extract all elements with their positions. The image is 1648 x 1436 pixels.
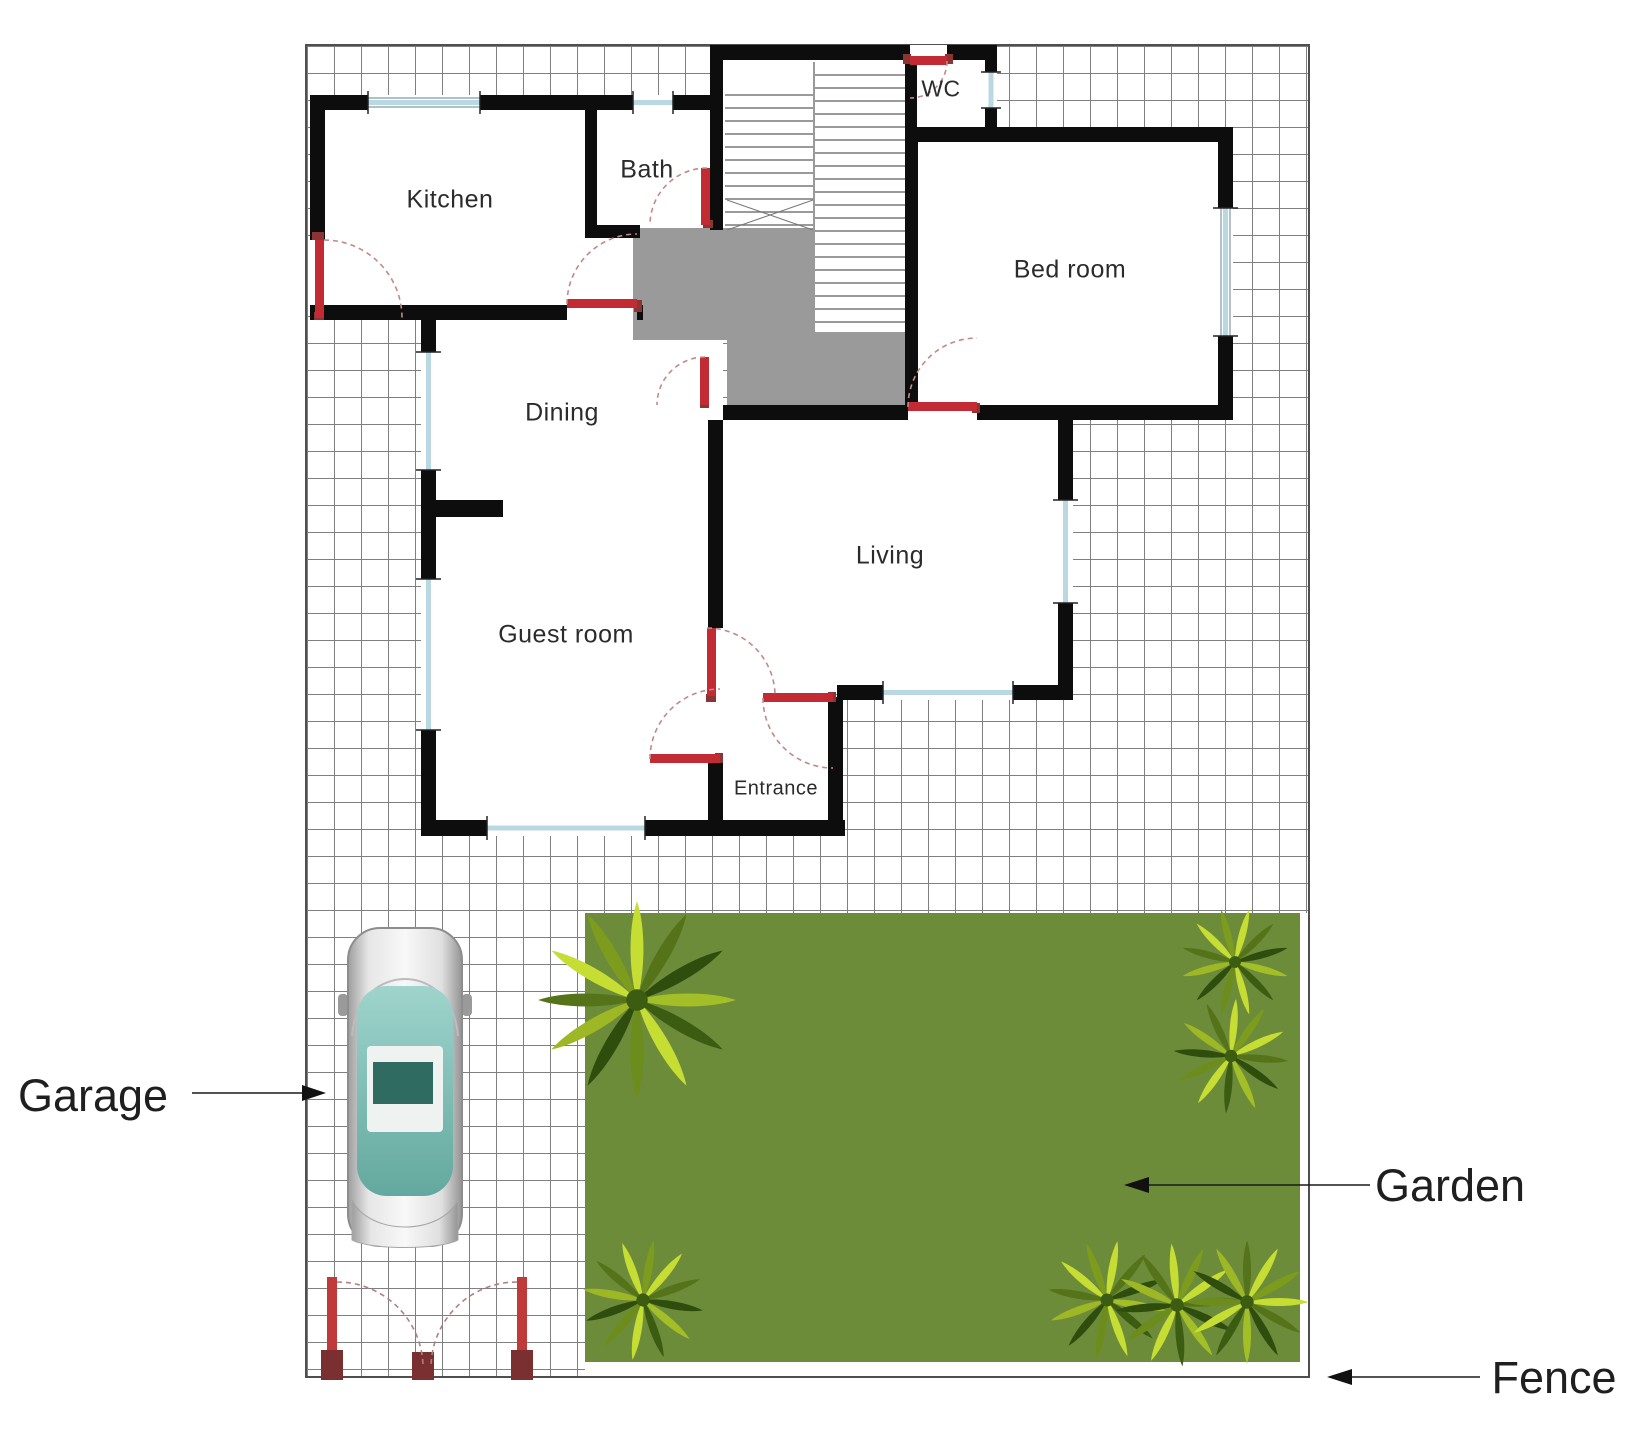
garden-annotation: Garden — [1375, 1160, 1525, 1212]
gate — [321, 1277, 533, 1380]
kitchen-dining-door — [567, 299, 637, 308]
palm-plant-icon — [557, 1214, 728, 1385]
bath-door — [701, 168, 710, 225]
dining-hall-door — [700, 357, 709, 405]
garage-annotation: Garage — [18, 1070, 168, 1122]
bedroom-door — [908, 402, 977, 411]
kitchen-exterior-door — [315, 240, 324, 318]
garden-arrowhead-icon — [1124, 1177, 1149, 1193]
bedroom-label: Bed room — [1014, 256, 1126, 285]
front-entrance-door — [763, 693, 833, 702]
garage-arrowhead-icon — [302, 1085, 326, 1101]
dining-label: Dining — [525, 399, 599, 428]
car-top-view — [338, 928, 472, 1248]
wc-label: WC — [921, 76, 960, 103]
living-label: Living — [856, 542, 924, 571]
guest-door — [650, 754, 720, 763]
garden-palms — [538, 896, 1309, 1391]
fence-arrowhead-icon — [1327, 1369, 1352, 1385]
guest-room-label: Guest room — [498, 621, 634, 650]
wc-door — [910, 56, 947, 65]
entrance-label: Entrance — [734, 778, 818, 801]
kitchen-label: Kitchen — [407, 186, 494, 215]
palm-plant-icon — [1155, 980, 1308, 1133]
floor-plan-canvas: Kitchen Bath WC Bed room Dining Living G… — [0, 0, 1648, 1436]
palm-plant-icon — [538, 901, 736, 1099]
room-floors — [308, 45, 1218, 820]
bath-label: Bath — [620, 156, 673, 185]
fence-annotation: Fence — [1491, 1352, 1616, 1404]
plan-drawing — [0, 0, 1648, 1436]
living-door — [707, 628, 716, 696]
